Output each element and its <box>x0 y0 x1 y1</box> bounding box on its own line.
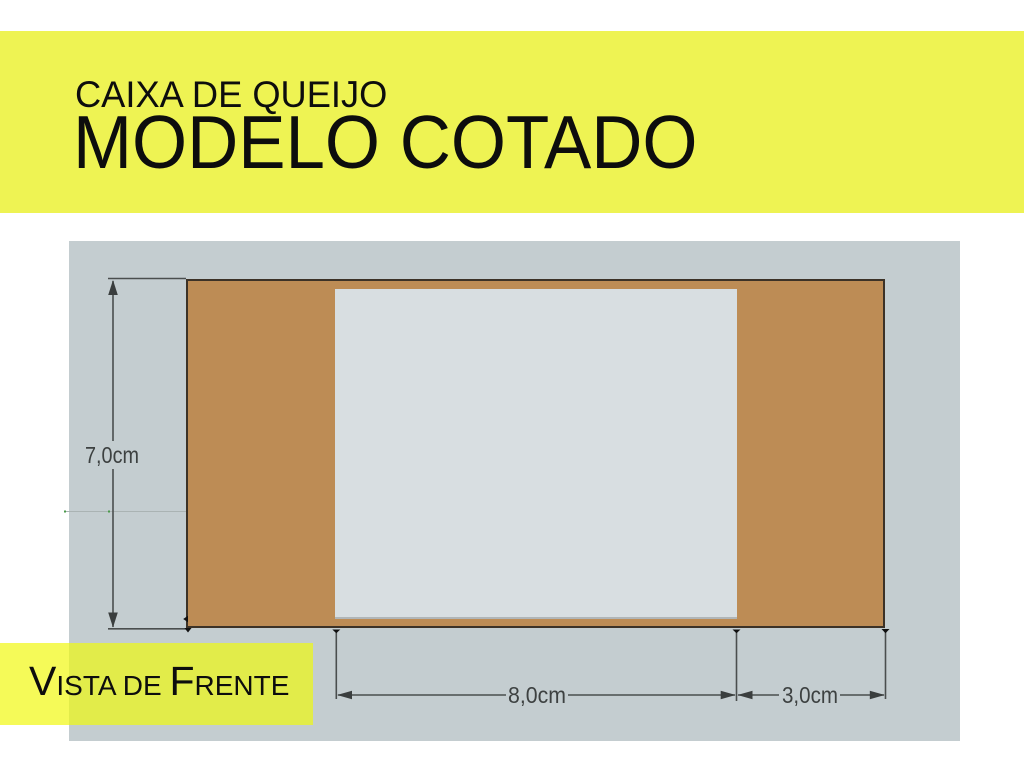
svg-text:3,0cm: 3,0cm <box>782 682 838 708</box>
svg-text:8,0cm: 8,0cm <box>508 682 566 708</box>
svg-text:7,0cm: 7,0cm <box>85 442 139 468</box>
